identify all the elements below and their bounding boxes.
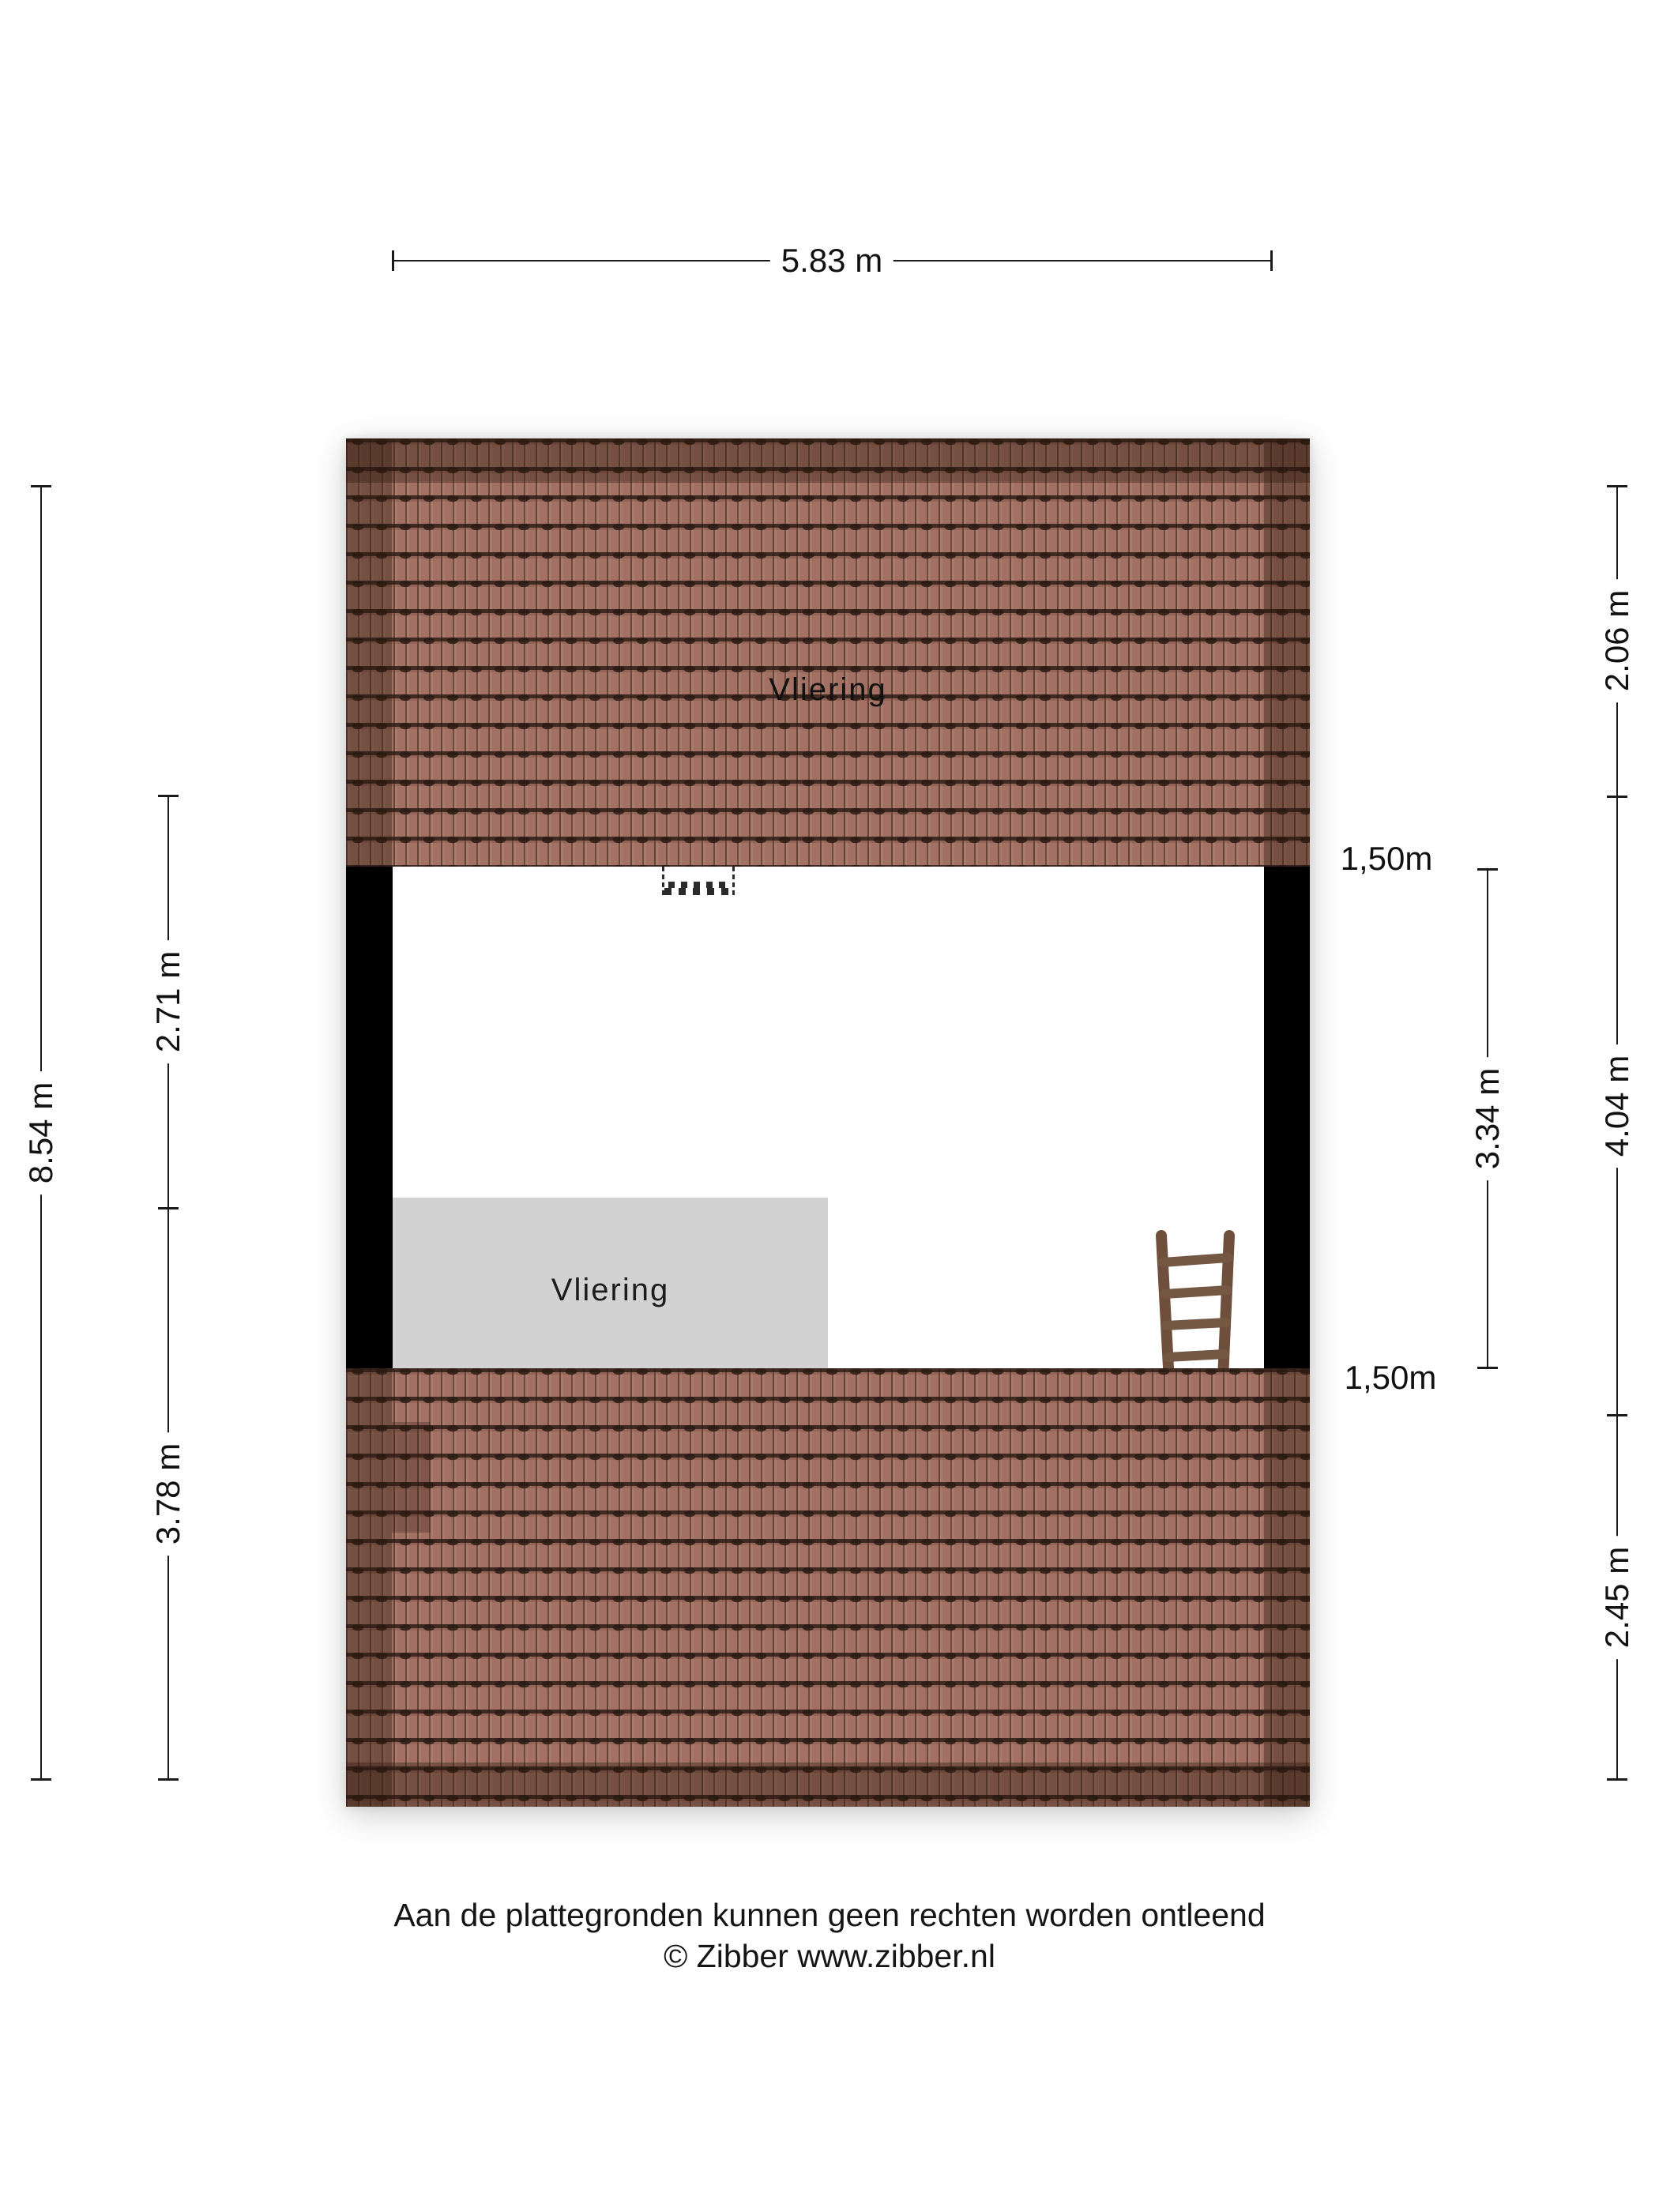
roof-upper-edge-top bbox=[346, 438, 1310, 483]
dim-tick bbox=[158, 1778, 179, 1781]
roof-lower-dark-patch bbox=[392, 1422, 431, 1533]
dim-tick bbox=[31, 485, 51, 487]
dim-label-right-bottom: 2.45 m bbox=[1598, 1536, 1636, 1659]
roof-upper: Vliering bbox=[346, 438, 1310, 867]
knee-height-label-bottom: 1,50m bbox=[1345, 1359, 1437, 1397]
roof-upper-edge-left bbox=[346, 438, 392, 867]
knee-height-label-top: 1,50m bbox=[1341, 840, 1433, 878]
dim-tick bbox=[1607, 1414, 1627, 1416]
loft-hatch-icon bbox=[662, 867, 735, 895]
room-label-vliering-bottom: Vliering bbox=[393, 1198, 828, 1368]
dim-label-right-inner: 3.34 m bbox=[1469, 1057, 1507, 1180]
dim-tick bbox=[158, 1207, 179, 1209]
footer: Aan de plattegronden kunnen geen rechten… bbox=[0, 1894, 1659, 1977]
dim-label-left-upper: 2.71 m bbox=[149, 940, 187, 1063]
dim-tick bbox=[392, 250, 394, 271]
dim-label-left-total: 8.54 m bbox=[22, 1071, 60, 1194]
loft-hatch-teeth-row2 bbox=[668, 882, 731, 888]
roof-lower-edge-left bbox=[346, 1368, 392, 1807]
knee-wall-left bbox=[346, 867, 393, 1368]
loft-hatch-teeth bbox=[664, 888, 732, 895]
roof-lower-edge-right bbox=[1264, 1368, 1310, 1807]
footer-disclaimer: Aan de plattegronden kunnen geen rechten… bbox=[0, 1894, 1659, 1935]
dim-label-top-width: 5.83 m bbox=[770, 242, 893, 280]
dim-tick bbox=[158, 795, 179, 797]
room-label-vliering-top: Vliering bbox=[346, 672, 1310, 708]
roof-lower-edge-bottom bbox=[346, 1762, 1310, 1807]
footer-copyright: © Zibber www.zibber.nl bbox=[0, 1935, 1659, 1977]
knee-wall-right bbox=[1264, 867, 1310, 1368]
dim-tick bbox=[1270, 250, 1273, 271]
dim-tick bbox=[1607, 796, 1627, 798]
roof-lower bbox=[346, 1368, 1310, 1807]
floorplan-page: Vliering Vliering bbox=[0, 0, 1659, 2212]
dim-tick bbox=[1477, 868, 1498, 871]
dim-tick bbox=[1607, 485, 1627, 487]
dim-tick bbox=[1477, 1367, 1498, 1369]
roof-upper-edge-right bbox=[1264, 438, 1310, 867]
dim-tick bbox=[31, 1778, 51, 1781]
dim-tick bbox=[1607, 1778, 1627, 1781]
dim-label-right-top: 2.06 m bbox=[1598, 579, 1636, 702]
dim-label-right-mid: 4.04 m bbox=[1598, 1044, 1636, 1168]
floorplan-canvas: Vliering Vliering bbox=[346, 438, 1310, 1807]
dim-label-left-lower: 3.78 m bbox=[149, 1432, 187, 1556]
